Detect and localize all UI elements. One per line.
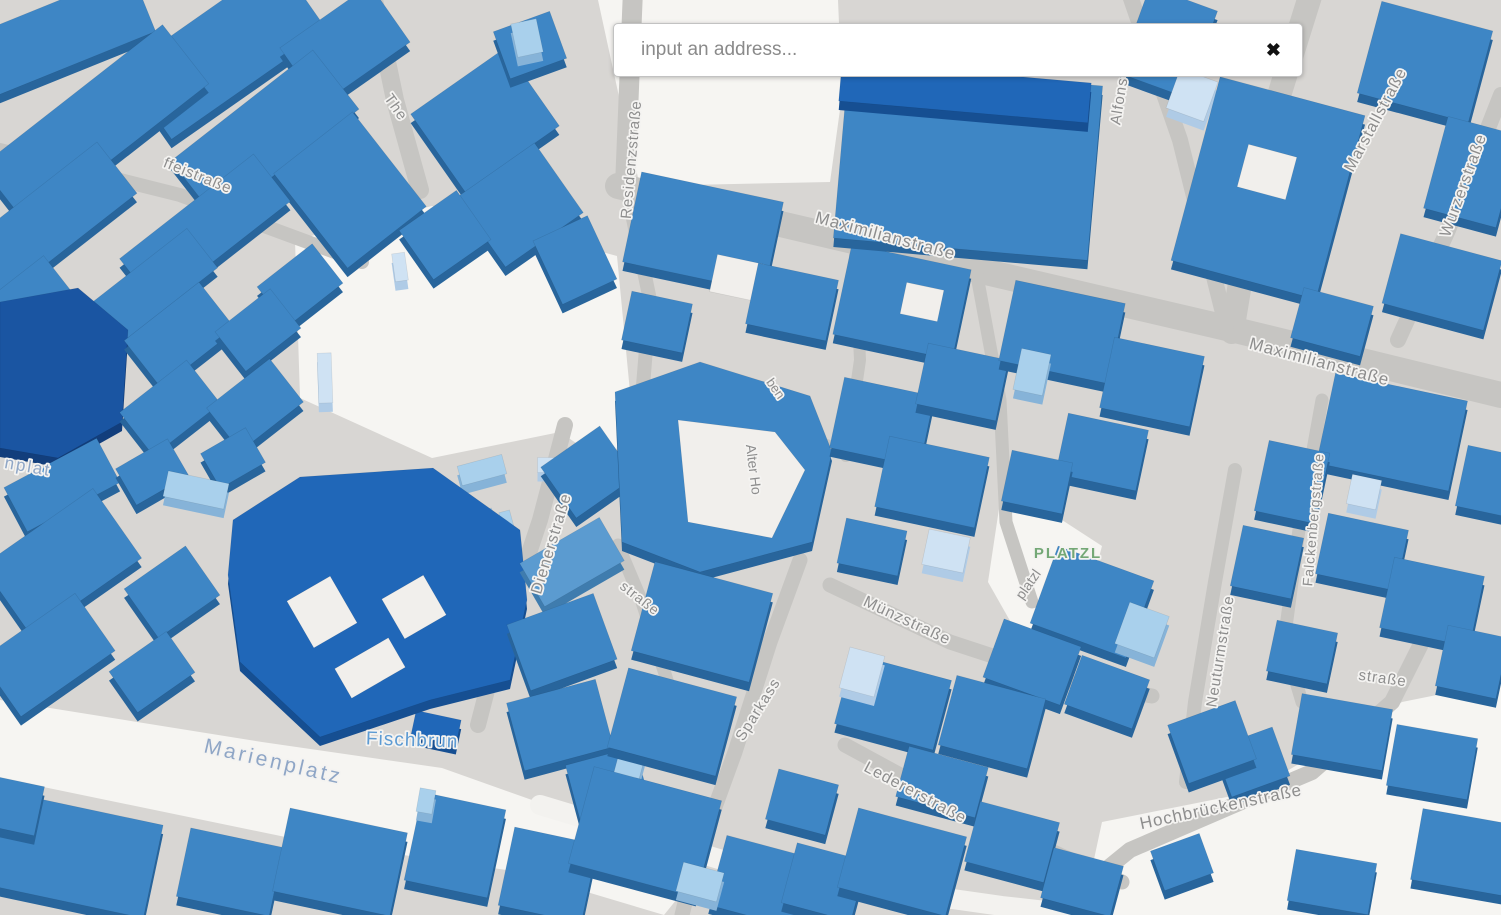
building[interactable] (1230, 525, 1304, 599)
clear-search-icon[interactable]: ✖ (1245, 41, 1302, 59)
address-search-input[interactable] (614, 24, 1245, 76)
map-canvas[interactable]: MaximilianstraßeMaximilianstraßeMarstall… (0, 0, 1501, 915)
map-label: Fischbrun (366, 728, 459, 752)
map-label: PLATZL (1034, 545, 1102, 562)
building[interactable] (317, 353, 333, 403)
map-app: MaximilianstraßeMaximilianstraßeMarstall… (0, 0, 1501, 915)
building[interactable] (1346, 474, 1382, 510)
address-search-box: ✖ (613, 23, 1303, 77)
